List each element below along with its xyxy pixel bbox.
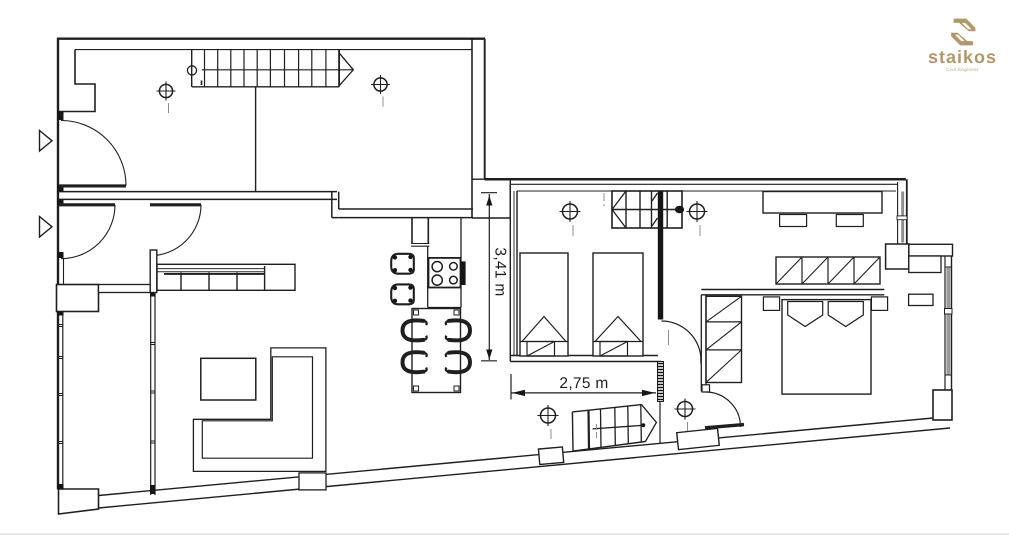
svg-text:staikos: staikos: [928, 47, 997, 67]
svg-text:Civil Engineer: Civil Engineer: [946, 67, 979, 72]
svg-text:2,75 m: 2,75 m: [559, 375, 608, 392]
svg-text:3,41 m: 3,41 m: [491, 247, 508, 296]
